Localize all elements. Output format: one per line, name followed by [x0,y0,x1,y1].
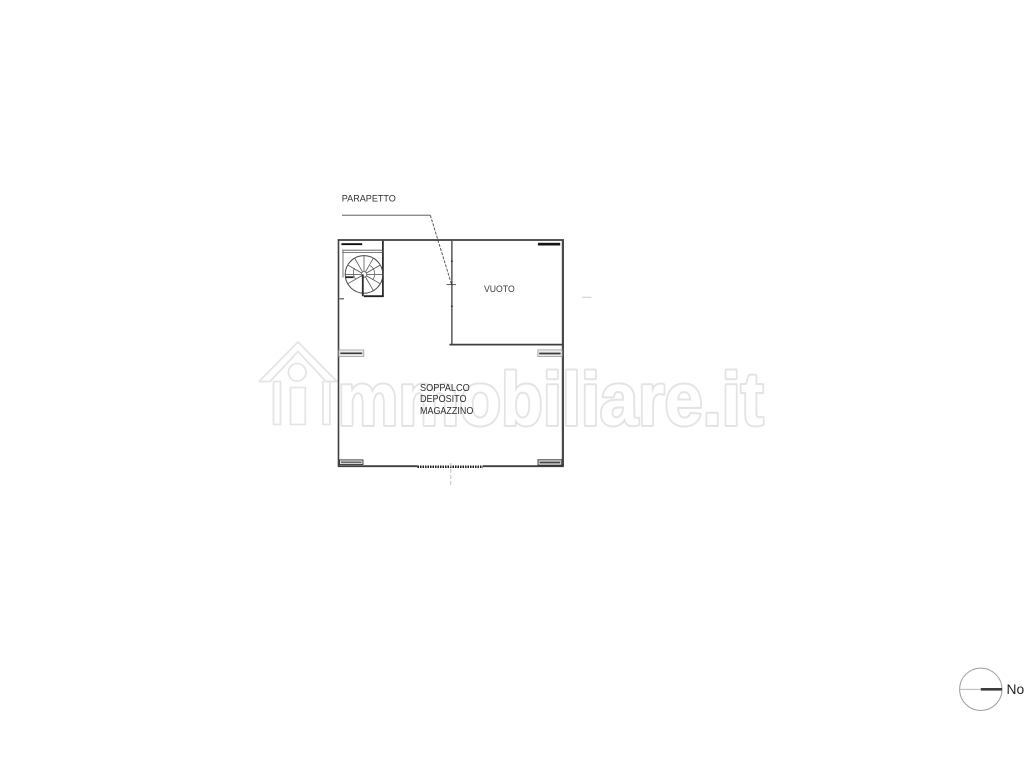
svg-text:PARAPETTO: PARAPETTO [342,193,396,204]
svg-text:SOPPALCO: SOPPALCO [420,383,470,394]
svg-text:MAGAZZINO: MAGAZZINO [420,406,474,417]
svg-text:VUOTO: VUOTO [484,284,515,295]
svg-text:DEPOSITO: DEPOSITO [420,394,467,405]
svg-text:mmobiliare.it: mmobiliare.it [338,357,764,441]
svg-text:Nord: Nord [1007,682,1024,697]
